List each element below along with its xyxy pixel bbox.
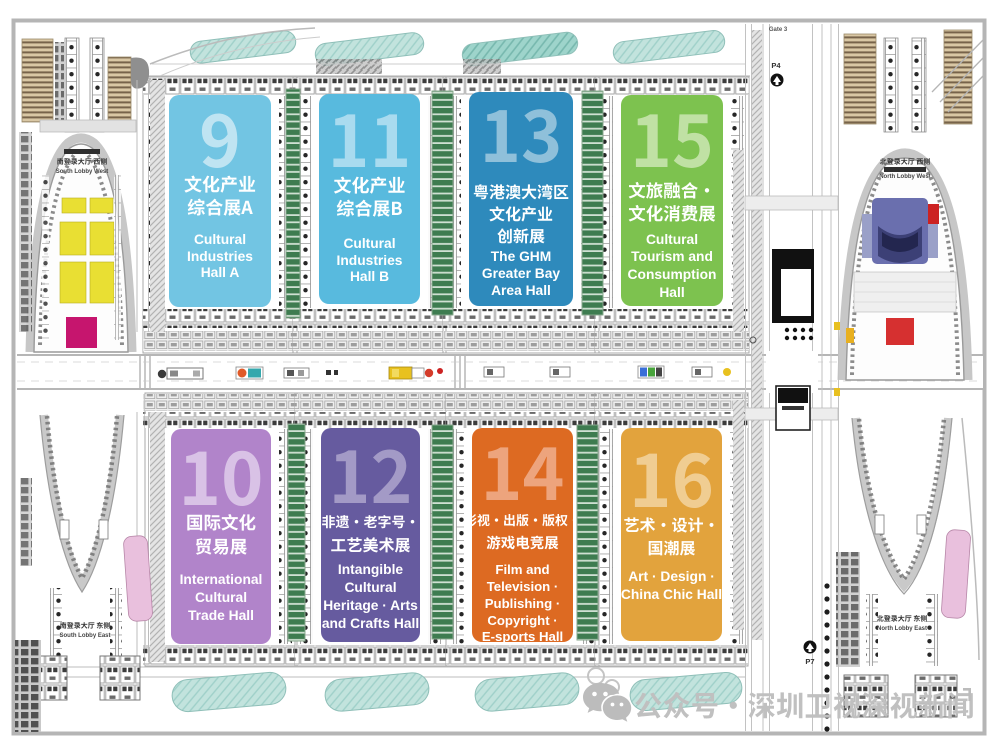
svg-text:Hall B: Hall B	[350, 269, 389, 284]
svg-text:Gate 3: Gate 3	[769, 27, 788, 33]
svg-text:North Lobby East: North Lobby East	[877, 626, 927, 632]
svg-text:International: International	[180, 572, 263, 587]
svg-text:and Crafts Hall: and Crafts Hall	[322, 616, 419, 631]
svg-text:The GHM: The GHM	[491, 249, 552, 264]
svg-text:Trade Hall: Trade Hall	[188, 608, 254, 623]
svg-text:Cultural: Cultural	[646, 232, 698, 247]
svg-text:P4: P4	[771, 61, 781, 70]
svg-text:Area Hall: Area Hall	[491, 283, 551, 298]
svg-text:Heritage · Arts: Heritage · Arts	[323, 598, 418, 613]
svg-text:Cultural: Cultural	[195, 590, 247, 605]
svg-text:Cultural: Cultural	[194, 232, 246, 247]
svg-text:E-sports Hall: E-sports Hall	[482, 629, 563, 644]
svg-text:Hall: Hall	[659, 285, 684, 300]
svg-text:Copyright ·: Copyright ·	[487, 613, 557, 628]
svg-text:Intangible: Intangible	[338, 562, 403, 577]
svg-text:Greater Bay: Greater Bay	[482, 266, 561, 281]
svg-text:Tourism and: Tourism and	[631, 249, 713, 264]
svg-text:China Chic Hall: China Chic Hall	[621, 587, 722, 602]
svg-text:Industries: Industries	[337, 253, 403, 268]
svg-text:Hall A: Hall A	[201, 265, 240, 280]
svg-text:Industries: Industries	[187, 249, 253, 264]
svg-text:Cultural: Cultural	[343, 236, 395, 251]
svg-text:North Lobby West: North Lobby West	[879, 174, 931, 180]
svg-text:Consumption: Consumption	[628, 267, 717, 282]
svg-text:Art · Design ·: Art · Design ·	[628, 569, 715, 584]
svg-text:Cultural: Cultural	[344, 580, 396, 595]
svg-text:P7: P7	[805, 657, 814, 666]
svg-text:Film and: Film and	[495, 562, 549, 577]
svg-text:South Lobby East: South Lobby East	[60, 633, 111, 639]
svg-text:Publishing ·: Publishing ·	[485, 596, 560, 611]
svg-text:Television ·: Television ·	[487, 579, 559, 594]
